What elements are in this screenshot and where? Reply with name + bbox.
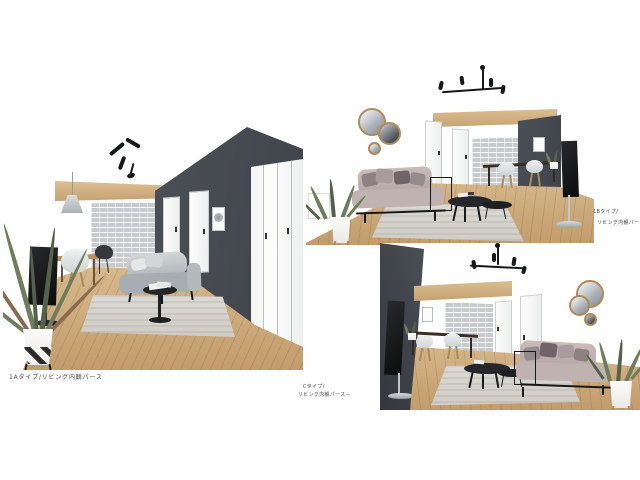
door-handle <box>438 151 440 155</box>
chandelier-bulb <box>500 85 506 95</box>
closet-handle <box>287 228 289 234</box>
sofa-cushion <box>144 254 163 268</box>
counter-plant-pot <box>550 162 558 169</box>
sofa-leg <box>522 387 524 397</box>
track-light-head <box>126 172 135 179</box>
door-handle <box>175 227 177 232</box>
presentation-page: { "captions": { "a": { "caption": "1Aタイプ… <box>0 0 640 480</box>
sofa-leg <box>364 213 366 223</box>
table-decor <box>458 193 468 198</box>
art-frame <box>533 137 545 152</box>
sofa-leg <box>602 385 604 395</box>
sofa-cushion <box>557 344 574 358</box>
render-c-image <box>380 243 640 410</box>
plant-pot <box>608 381 634 408</box>
dining-chair-black <box>95 244 114 259</box>
chandelier-bulb <box>438 81 444 91</box>
track-light-bar <box>109 142 125 157</box>
track-light-bar <box>118 156 127 171</box>
plant-pot-pattern <box>23 347 53 364</box>
counter-chair <box>416 335 433 348</box>
chandelier-bulb <box>459 76 464 85</box>
render-1b-image <box>306 65 594 245</box>
caption-render-c-line2: リビング内観パース— <box>298 391 351 399</box>
chandelier-bulb <box>492 253 496 262</box>
wall-mirror <box>378 122 401 145</box>
coffee-table-leg <box>482 374 484 389</box>
door <box>189 190 209 273</box>
chandelier-bar <box>442 87 504 93</box>
chair-leg <box>99 258 100 274</box>
caption-render-c: Cタイプ/ リビング内観パース— <box>298 383 351 399</box>
tv-stand <box>568 195 570 223</box>
chandelier-bulb <box>521 266 527 275</box>
chandelier-stem <box>482 67 484 89</box>
tv-base <box>556 221 582 228</box>
closet-doors <box>249 157 303 351</box>
closet-handle <box>265 233 267 239</box>
chandelier-stem <box>497 245 499 265</box>
chandelier-bulb <box>511 257 516 266</box>
table-decor <box>468 192 474 195</box>
sofa-cushion <box>393 170 410 185</box>
door-handle <box>497 327 499 331</box>
caption-render-1b: 1Bタイプ/ リビング内観パース <box>593 207 640 229</box>
table-decor <box>474 360 484 365</box>
caption-render-1b-line2: リビング内観パース <box>597 218 640 229</box>
door-handle <box>523 335 525 340</box>
brick-wall <box>445 302 493 355</box>
counter-chair <box>526 160 543 173</box>
wall-mirror <box>368 142 381 155</box>
table-leg <box>93 259 95 285</box>
sofa-leg <box>434 211 436 221</box>
counter-leg <box>470 338 472 358</box>
sofa-metal-frame <box>514 351 536 385</box>
chandelier-joint <box>480 65 485 70</box>
chandelier-bar <box>470 265 526 270</box>
wall-mirror <box>584 313 597 326</box>
counter-leg <box>488 166 490 186</box>
plant-pot <box>330 217 352 243</box>
side-table-base <box>149 317 171 323</box>
poster-art <box>214 213 223 222</box>
art-frame <box>422 307 433 322</box>
sofa-metal-frame <box>430 177 452 211</box>
sofa-leg <box>161 295 163 304</box>
chandelier-bulb <box>471 260 477 270</box>
tv-stand <box>398 373 400 395</box>
door-handle <box>465 155 467 159</box>
caption-render-1a: 1Aタイプ/リビング内観パース <box>9 372 103 381</box>
pendant-cord <box>72 172 73 196</box>
caption-render-1b-line1: 1Bタイプ/ <box>593 207 640 218</box>
coffee-table-leg <box>464 207 466 222</box>
chandelier-bulb <box>489 78 493 87</box>
sofa-cushion <box>409 172 426 186</box>
counter-chair <box>444 333 461 346</box>
sofa-cushion <box>539 342 557 358</box>
caption-render-c-line1: Cタイプ/ <box>303 383 351 391</box>
wood-beam <box>412 279 514 301</box>
sofa-cushion <box>375 168 393 184</box>
counter-plant-pot <box>408 333 416 340</box>
sofa-armrest <box>187 263 202 291</box>
counter-chair <box>498 162 515 175</box>
side-table-stem <box>158 293 161 319</box>
track-light-bar <box>125 137 141 148</box>
chandelier-joint <box>495 243 500 248</box>
door-handle <box>203 229 205 234</box>
render-1a-image <box>3 127 303 370</box>
tv <box>561 141 579 198</box>
tv-base <box>388 393 414 399</box>
